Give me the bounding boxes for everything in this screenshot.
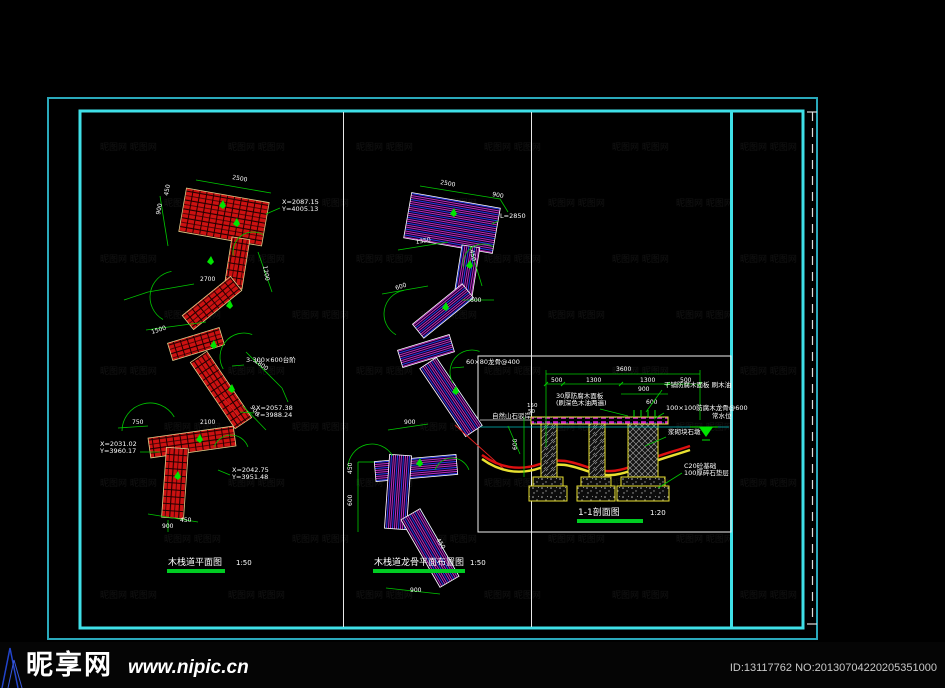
tile-watermark-text: 昵图网 昵图网 — [356, 590, 413, 601]
tile-watermark-text: 昵图网 昵图网 — [100, 142, 157, 153]
leader-text: X=2031.02Y=3960.17 — [99, 440, 137, 455]
tile-watermark-text: 昵图网 昵图网 — [356, 142, 413, 153]
site-url: www.nipic.cn — [128, 657, 249, 679]
leader-text: L=2850 — [500, 212, 526, 220]
angle-arc — [450, 350, 480, 383]
dimension-text: 600 — [394, 282, 407, 292]
tile-watermark-text: 昵图网 昵图网 — [676, 198, 733, 209]
dimension-text: 1350 — [415, 236, 431, 246]
dimension-line — [500, 199, 508, 212]
dimension-line — [148, 284, 194, 292]
footing-pad — [529, 486, 567, 501]
dimension-line — [196, 180, 271, 193]
footing-pad — [577, 486, 615, 501]
title-underline-bar — [167, 569, 225, 573]
drawing-title: 木栈道平面图 — [168, 556, 222, 568]
plan-segment — [162, 447, 189, 518]
leader-text: X=2087.15Y=4005.13 — [281, 198, 319, 213]
dimension-text: 450 — [347, 462, 354, 474]
footing-cap — [621, 477, 665, 486]
title-underline-bar — [577, 519, 643, 523]
tile-watermark-text: 昵图网 昵图网 — [228, 142, 285, 153]
dimension-text: 2100 — [200, 419, 215, 426]
tile-watermark-text: 昵图网 昵图网 — [228, 590, 285, 601]
plan-segment — [398, 334, 455, 367]
leader-text: X=2057.38Y=3988.24 — [255, 404, 293, 419]
watermark-bar: 昵享网 www.nipic.cn ID:13117762 NO:20130704… — [0, 642, 945, 688]
dimension-text: 900 — [492, 191, 505, 200]
tile-watermark-text: 昵图网 昵图网 — [356, 366, 413, 377]
tile-watermark-text: 昵图网 昵图网 — [612, 254, 669, 265]
tile-watermark-text: 昵图网 昵图网 — [740, 254, 797, 265]
dimension-text: 2700 — [200, 276, 215, 283]
leader-text: 3-300×600台阶 — [246, 355, 296, 364]
tile-watermark-text: 昵图网 昵图网 — [100, 366, 157, 377]
tile-watermark-text: 昵图网 昵图网 — [740, 366, 797, 377]
tile-watermark-text: 昵图网 昵图网 — [740, 590, 797, 601]
tile-watermark-text: 昵图网 昵图网 — [292, 534, 349, 545]
annotation-text: C20砼基础100厚碎石垫层 — [684, 461, 729, 477]
pier-crosshatch — [628, 424, 658, 477]
tile-watermark-text: 昵图网 昵图网 — [740, 478, 797, 489]
tile-watermark-text: 昵图网 昵图网 — [356, 254, 413, 265]
dimension-text: 1300 — [586, 377, 601, 384]
leader-line — [232, 365, 244, 366]
dimension-line — [124, 292, 148, 300]
tile-watermark-text: 昵图网 昵图网 — [484, 366, 541, 377]
tile-watermark-text: 昵图网 昵图网 — [484, 254, 541, 265]
tile-watermark-text: 昵图网 昵图网 — [676, 310, 733, 321]
screenshot-root: 昵图网 昵图网昵图网 昵图网昵图网 昵图网昵图网 昵图网昵图网 昵图网昵图网 昵… — [0, 0, 945, 688]
dimension-line — [282, 388, 288, 402]
dimension-text: 600 — [646, 399, 658, 406]
footing-cap — [581, 477, 611, 486]
tile-watermark-text: 昵图网 昵图网 — [612, 590, 669, 601]
annotation-text: 干铺防腐木面板 刷木油 — [664, 380, 731, 389]
tile-watermark-text: 昵图网 昵图网 — [548, 534, 605, 545]
angle-arc — [384, 290, 404, 334]
tile-watermark-text: 昵图网 昵图网 — [292, 422, 349, 433]
tile-watermark-text: 昵图网 昵图网 — [612, 142, 669, 153]
dimension-text: 600 — [470, 297, 482, 304]
tile-watermark-text: 昵图网 昵图网 — [100, 590, 157, 601]
tile-watermark-text: 昵图网 昵图网 — [292, 310, 349, 321]
footing-pad — [617, 486, 669, 501]
annotation-text: 自然山石驳岸 — [492, 411, 532, 420]
deck-plank-band — [531, 417, 668, 424]
annotation-text: 30厚防腐木面板(刷深色木油两遍) — [556, 391, 607, 407]
plan-segment — [374, 454, 457, 481]
pier — [541, 424, 557, 477]
site-name: 昵享网 — [26, 643, 113, 682]
leader-line — [218, 470, 230, 475]
drawing-title: 木栈道龙骨平面布置图 — [374, 556, 464, 568]
dimension-text: 450 — [163, 184, 172, 197]
plant-marker-icon — [207, 256, 214, 265]
dimension-text: 750 — [132, 419, 144, 426]
dimension-text: 900 — [162, 523, 174, 530]
dimension-text: 450 — [180, 517, 192, 524]
ground-line-soil — [482, 450, 690, 475]
cad-sheet-svg: 昵图网 昵图网昵图网 昵图网昵图网 昵图网昵图网 昵图网昵图网 昵图网昵图网 昵… — [0, 0, 945, 688]
tile-watermark-text: 昵图网 昵图网 — [484, 590, 541, 601]
annotation-text: 浆砌块石墩 — [668, 427, 701, 436]
tile-watermark-text: 昵图网 昵图网 — [484, 142, 541, 153]
drawing-scale: 1:20 — [650, 509, 666, 517]
pier — [589, 424, 605, 477]
tile-watermark-text: 昵图网 昵图网 — [676, 534, 733, 545]
tile-watermark-text: 昵图网 昵图网 — [548, 310, 605, 321]
footing-cap — [533, 477, 563, 486]
drawing-scale: 1:50 — [470, 559, 486, 567]
dimension-text: 1300 — [640, 377, 655, 384]
dimension-text: 1500 — [150, 324, 167, 335]
title-underline-bar — [373, 569, 465, 573]
plan-segment — [401, 509, 459, 588]
dimension-text: 500 — [551, 377, 563, 384]
dimension-text: 900 — [410, 587, 422, 594]
annotation-text: 常水位 — [712, 411, 732, 420]
dimension-text: 2500 — [440, 179, 456, 189]
dimension-text: 2500 — [232, 174, 248, 184]
tile-watermark-text: 昵图网 昵图网 — [740, 142, 797, 153]
leader-text: X=2042.75Y=3951.48 — [231, 466, 269, 481]
image-id-text: ID:13117762 NO:20130704220205351000 — [730, 662, 937, 674]
tile-watermark-text: 昵图网 昵图网 — [100, 478, 157, 489]
plan-segment — [179, 188, 269, 246]
drawing-scale: 1:50 — [236, 559, 252, 567]
tile-watermark-text: 昵图网 昵图网 — [548, 198, 605, 209]
leader-line — [452, 367, 464, 368]
tile-watermark-text: 昵图网 昵图网 — [228, 366, 285, 377]
dimension-text: 600 — [347, 494, 354, 506]
drawing-title: 1-1剖面图 — [578, 506, 620, 518]
tile-watermark-text: 昵图网 昵图网 — [100, 254, 157, 265]
dimension-text: 900 — [638, 386, 650, 393]
leader-text: 60×80龙骨@400 — [466, 357, 520, 366]
dimension-text: 1200 — [261, 265, 271, 281]
dimension-text: 900 — [404, 419, 416, 426]
leader-line — [600, 409, 628, 416]
annotation-text: 100×100防腐木龙骨@600 — [666, 403, 748, 412]
dimension-text: 3600 — [616, 366, 631, 373]
tile-watermark-text: 昵图网 昵图网 — [164, 534, 221, 545]
